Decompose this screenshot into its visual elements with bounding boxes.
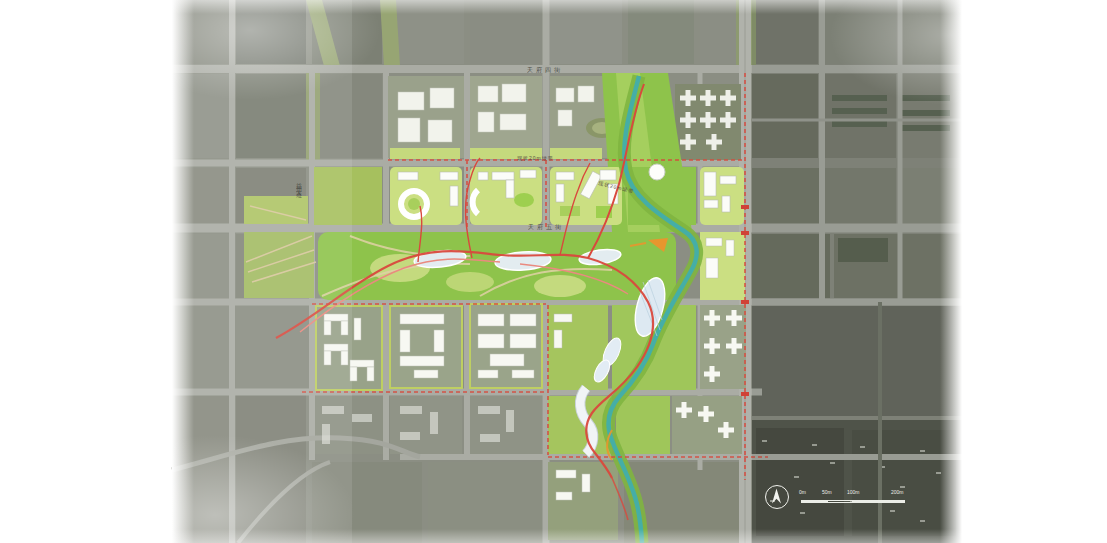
scale-label-100: 100m <box>847 489 860 495</box>
site-plan-graphic <box>0 0 1107 543</box>
residential-block-top-right <box>675 84 741 160</box>
master-plan-page: 天府四街 天府五街 益州大道 现状20m绿带 现状20m绿带 0m 50m 10… <box>0 0 1107 543</box>
greenbelt-annotation: 现状20m绿带 <box>517 155 554 161</box>
scale-label-200: 200m <box>891 489 904 495</box>
scale-bar: 0m 50m 100m 200m <box>799 487 911 507</box>
round-plaza <box>649 164 665 180</box>
scale-segment <box>853 500 905 503</box>
road-label-left-vertical: 益州大道 <box>294 178 303 190</box>
north-arrow-icon <box>765 485 789 509</box>
scale-segment <box>827 500 853 503</box>
scale-segment <box>801 500 827 503</box>
master-plan-map: 天府四街 天府五街 益州大道 现状20m绿带 现状20m绿带 0m 50m 10… <box>0 0 1107 543</box>
road-label-middle: 天府五街 <box>528 223 564 232</box>
road-label-top: 天府四街 <box>527 66 563 75</box>
scale-label-50: 50m <box>822 489 832 495</box>
upper-transition-blocks <box>388 76 620 159</box>
scale-label-0: 0m <box>799 489 806 495</box>
